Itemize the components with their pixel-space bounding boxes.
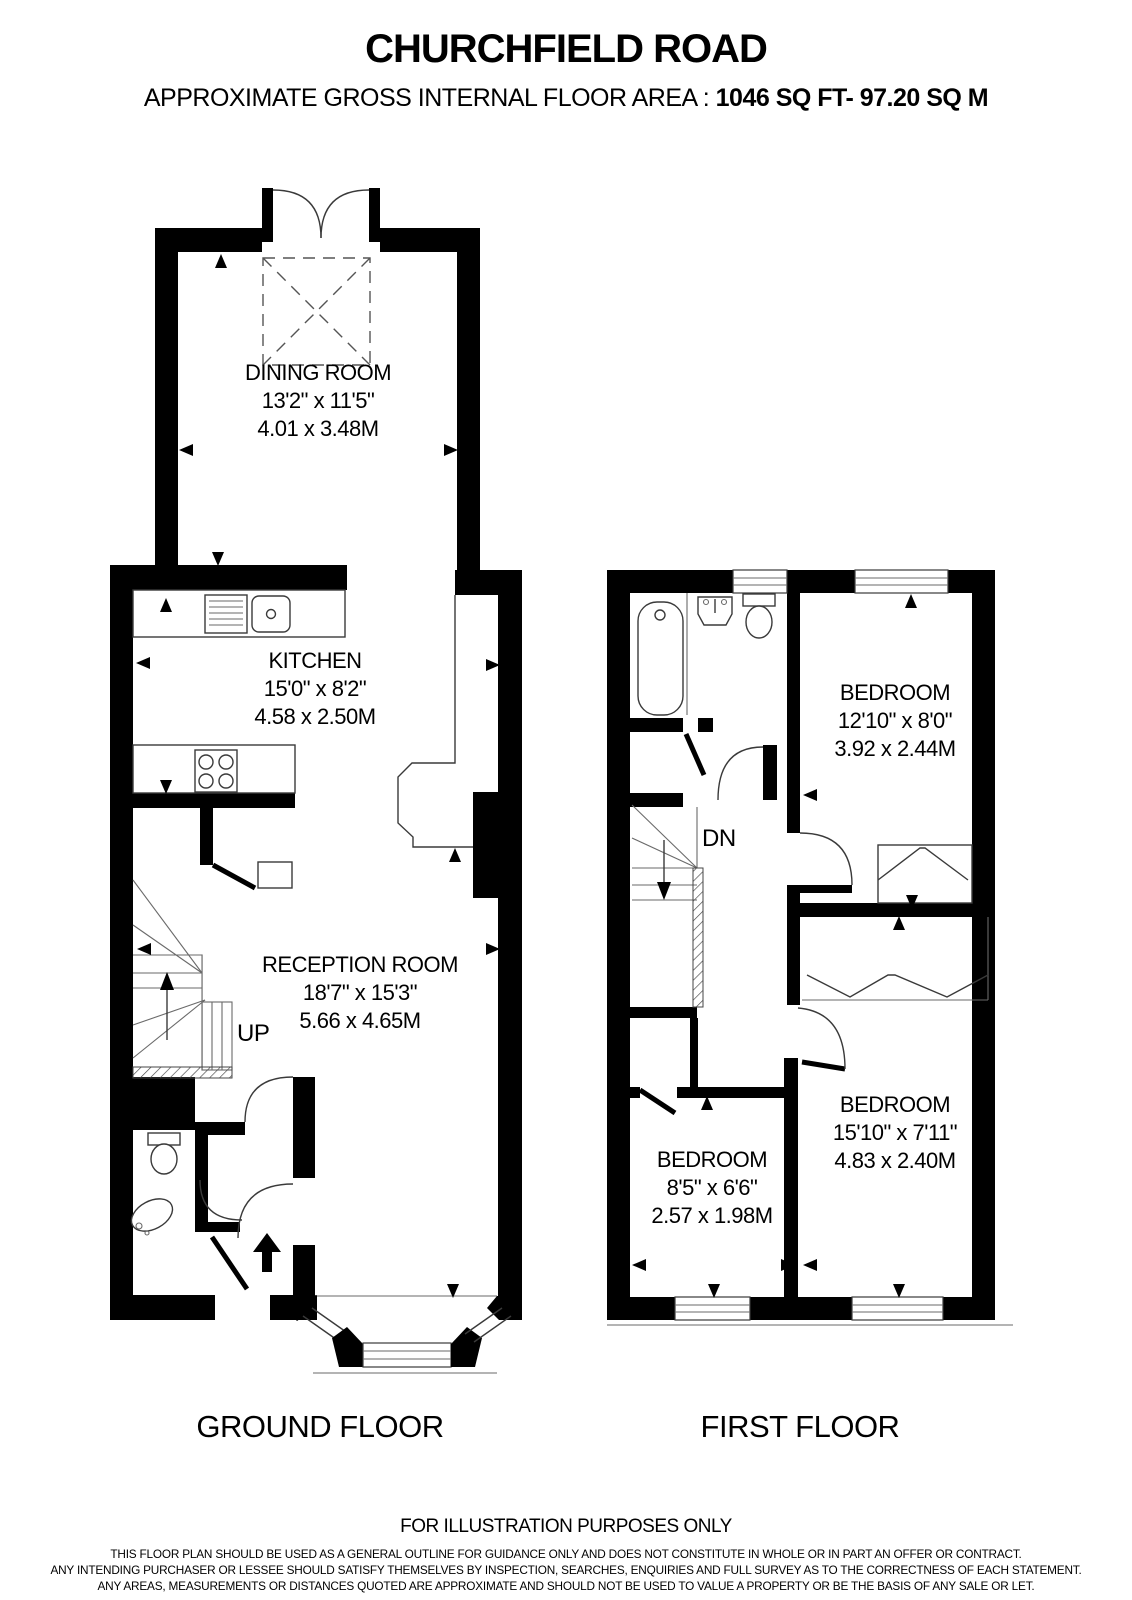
- room-name: DINING ROOM: [245, 360, 391, 385]
- front-door: [212, 1077, 293, 1289]
- bay-window: [285, 1296, 522, 1373]
- bathroom-basin: [698, 597, 732, 625]
- room-name: BEDROOM: [840, 680, 950, 705]
- room-name: KITCHEN: [268, 648, 361, 673]
- room-dims-imperial: 15'0" x 8'2": [264, 676, 366, 701]
- room-dims-metric: 5.66 x 4.65M: [299, 1008, 420, 1033]
- window: [675, 1297, 750, 1320]
- ground-floor-title: GROUND FLOOR: [196, 1409, 443, 1444]
- room-dims-imperial: 18'7" x 15'3": [303, 980, 417, 1005]
- room-dims-imperial: 13'2" x 11'5": [262, 388, 375, 413]
- area-value: 1046 SQ FT- 97.20 SQ M: [716, 84, 988, 112]
- window: [852, 1297, 943, 1320]
- window: [855, 570, 948, 593]
- bedroom1-label: BEDROOM 12'10" x 8'0" 3.92 x 2.44M: [834, 680, 955, 761]
- room-dims-metric: 4.83 x 2.40M: [834, 1148, 955, 1173]
- bedroom3-door: [798, 1008, 845, 1069]
- bedroom3-label: BEDROOM 15'10" x 7'11" 4.83 x 2.40M: [833, 1092, 957, 1173]
- page-title: CHURCHFIELD ROAD: [365, 27, 767, 71]
- disclaimer-line: ANY INTENDING PURCHASER OR LESSEE SHOULD…: [50, 1563, 1081, 1577]
- room-name: BEDROOM: [657, 1147, 767, 1172]
- stairs-up-label: UP: [237, 1020, 269, 1047]
- disclaimer-line: THIS FLOOR PLAN SHOULD BE USED AS A GENE…: [110, 1547, 1021, 1561]
- bedroom1-wardrobe: [878, 845, 972, 903]
- bedroom2-door: [640, 1090, 675, 1113]
- bathroom-door: [686, 734, 763, 800]
- floorplan-page: CHURCHFIELD ROAD APPROXIMATE GROSS INTER…: [0, 0, 1132, 1600]
- hall-top-door-arc: [245, 1077, 293, 1122]
- room-dims-imperial: 8'5" x 6'6": [667, 1175, 758, 1200]
- room-name: RECEPTION ROOM: [262, 952, 458, 977]
- room-dims-metric: 2.57 x 1.98M: [651, 1203, 772, 1228]
- window: [733, 570, 787, 593]
- area-subtitle: APPROXIMATE GROSS INTERNAL FLOOR AREA : …: [144, 84, 988, 112]
- room-dims-imperial: 15'10" x 7'11": [833, 1120, 957, 1145]
- french-doors: [273, 190, 369, 238]
- kitchen-label: KITCHEN 15'0" x 8'2" 4.58 x 2.50M: [254, 648, 375, 729]
- wc-basin: [126, 1192, 178, 1237]
- kitchen-counter-sink: [133, 590, 345, 637]
- illustration-notice: FOR ILLUSTRATION PURPOSES ONLY: [400, 1516, 732, 1537]
- ground-floor-plan: UP: [110, 188, 522, 1444]
- room-dims-metric: 3.92 x 2.44M: [834, 736, 955, 761]
- first-floor-title: FIRST FLOOR: [701, 1409, 900, 1444]
- skylight-outline: [263, 258, 370, 365]
- bathtub: [638, 593, 687, 715]
- reception-room-label: RECEPTION ROOM 18'7" x 15'3" 5.66 x 4.65…: [262, 952, 458, 1033]
- stairs-down: DN: [632, 805, 736, 1007]
- stairs-down-label: DN: [702, 825, 736, 852]
- bathroom-toilet: [743, 594, 775, 638]
- kitchen-counter-hob: [133, 745, 295, 793]
- bedroom2-label: BEDROOM 8'5" x 6'6" 2.57 x 1.98M: [651, 1147, 772, 1228]
- alcove-outline: [398, 595, 473, 847]
- bedroom1-door: [800, 833, 852, 885]
- entrance-arrow-icon: [253, 1233, 281, 1272]
- stairs-up: UP: [133, 880, 269, 1078]
- dining-room-label: DINING ROOM 13'2" x 11'5" 4.01 x 3.48M: [245, 360, 391, 441]
- first-floor-plan: DN: [607, 570, 1013, 1444]
- room-dims-imperial: 12'10" x 8'0": [838, 708, 952, 733]
- room-name: BEDROOM: [840, 1092, 950, 1117]
- floorplan-drawing: CHURCHFIELD ROAD APPROXIMATE GROSS INTER…: [0, 0, 1132, 1600]
- header: CHURCHFIELD ROAD APPROXIMATE GROSS INTER…: [144, 27, 988, 112]
- footer: FOR ILLUSTRATION PURPOSES ONLY THIS FLOO…: [50, 1516, 1081, 1593]
- room-dims-metric: 4.58 x 2.50M: [254, 704, 375, 729]
- wc-toilet: [148, 1133, 180, 1174]
- disclaimer-line: ANY AREAS, MEASUREMENTS OR DISTANCES QUO…: [98, 1579, 1035, 1593]
- room-dims-metric: 4.01 x 3.48M: [257, 416, 378, 441]
- area-label: APPROXIMATE GROSS INTERNAL FLOOR AREA :: [144, 84, 716, 112]
- hall-door-arc: [238, 1184, 293, 1238]
- kitchen-doorway: [213, 862, 292, 888]
